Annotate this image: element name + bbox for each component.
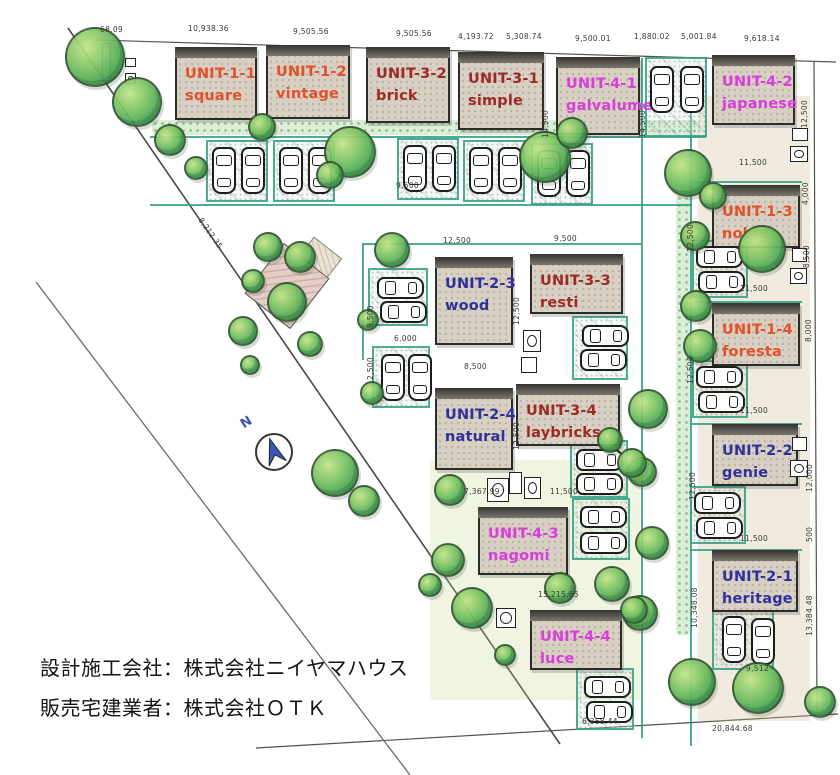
- unit-id: UNIT-2-2: [722, 441, 793, 463]
- car-icon: [212, 147, 236, 194]
- unit-roof-edge: [556, 57, 640, 68]
- unit-style-name: luce: [540, 649, 611, 671]
- dimension-label: 12,500: [686, 224, 695, 252]
- tree-icon: [297, 331, 323, 357]
- dimension-label: 13,384.48: [805, 595, 814, 636]
- tree-icon: [228, 316, 258, 346]
- tree-icon: [284, 241, 316, 273]
- unit-style-name: heritage: [722, 589, 793, 611]
- car-icon: [582, 325, 629, 347]
- unit-style-name: brick: [376, 86, 447, 108]
- dimension-label: 10,348.08: [690, 587, 699, 628]
- unit-roof-edge: [478, 507, 568, 518]
- unit-roof-edge: [530, 254, 623, 265]
- car-icon: [580, 506, 627, 528]
- dimension-label: 8,500: [366, 305, 375, 328]
- unit-roof-edge: [366, 47, 450, 58]
- unit-roof-edge: [712, 550, 798, 561]
- unit-square: UNIT-1-1square: [175, 47, 257, 120]
- dimension-label: 6,368.44: [582, 717, 618, 726]
- car-icon: [380, 301, 427, 323]
- dimension-label: 12,500: [800, 100, 809, 128]
- tree-icon: [738, 225, 786, 273]
- dimension-label: 12,000: [805, 464, 814, 492]
- tree-icon: [617, 448, 647, 478]
- unit-label: UNIT-4-4luce: [540, 627, 611, 671]
- dimension-label: 8,212.35: [197, 216, 225, 250]
- tree-icon: [594, 566, 630, 602]
- legend: 設計施工会社：株式会社ニイヤマハウス 販売宅建業者：株式会社ＯＴＫ: [40, 648, 408, 728]
- car-icon: [241, 147, 265, 194]
- car-icon: [696, 366, 743, 388]
- unit-natural: UNIT-2-4natural: [435, 388, 513, 470]
- tree-icon: [360, 381, 384, 405]
- dimension-label: 14,500: [541, 110, 550, 138]
- unit-id: UNIT-1-3: [722, 202, 793, 224]
- unit-id: UNIT-2-4: [445, 405, 516, 427]
- dimension-label: 20,844.68: [712, 724, 753, 733]
- unit-id: UNIT-4-1: [566, 74, 652, 96]
- unit-label: UNIT-1-1square: [185, 64, 256, 108]
- tree-icon: [680, 221, 710, 251]
- unit-foresta: UNIT-1-4foresta: [712, 303, 800, 366]
- unit-id: UNIT-4-3: [488, 524, 559, 546]
- dimension-label: 11,500: [739, 158, 767, 167]
- dimension-label: 11,500: [550, 487, 578, 496]
- north-arrow-icon: [258, 436, 290, 468]
- utility-box: [521, 357, 537, 373]
- tree-icon: [112, 77, 162, 127]
- unit-roof-edge: [516, 384, 620, 395]
- unit-label: UNIT-4-3nagomi: [488, 524, 559, 568]
- tree-icon: [267, 282, 307, 322]
- dimension-label: 12,500: [512, 422, 521, 450]
- road-edge-line: [362, 245, 364, 360]
- dimension-label: 11,500: [740, 284, 768, 293]
- dimension-label: 8,500: [464, 362, 487, 371]
- car-icon: [381, 354, 405, 401]
- unit-style-name: vintage: [276, 84, 347, 106]
- unit-id: UNIT-1-1: [185, 64, 256, 86]
- car-icon: [279, 147, 303, 194]
- dimension-label: 12,500: [512, 297, 521, 325]
- dimension-label: 5,001.84: [681, 32, 717, 41]
- north-label: N: [238, 413, 256, 432]
- unit-roof-edge: [458, 52, 544, 63]
- unit-style-name: natural: [445, 427, 516, 449]
- unit-roof-edge: [712, 303, 800, 314]
- unit-luce: UNIT-4-4luce: [530, 610, 622, 670]
- dimension-label: 8,500: [802, 245, 811, 268]
- dimension-label: 11,500: [740, 534, 768, 543]
- tree-icon: [241, 269, 265, 293]
- unit-roof-edge: [435, 388, 513, 399]
- dimension-label: 9,512: [746, 664, 769, 673]
- tree-icon: [680, 290, 712, 322]
- tree-icon: [248, 113, 276, 141]
- unit-id: UNIT-3-3: [540, 271, 611, 293]
- tree-icon: [154, 124, 186, 156]
- dimension-label: 4,000: [801, 182, 810, 205]
- tree-icon: [316, 161, 344, 189]
- unit-japanese: UNIT-4-2japanese: [712, 55, 795, 125]
- legend-seller-line: 販売宅建業者：株式会社ＯＴＫ: [40, 688, 408, 728]
- hedge-right-strip: [676, 195, 690, 635]
- unit-id: UNIT-4-2: [722, 72, 797, 94]
- unit-label: UNIT-1-2vintage: [276, 62, 347, 106]
- dimension-label: 11,500: [740, 406, 768, 415]
- unit-id: UNIT-3-4: [526, 401, 601, 423]
- unit-roof-edge: [175, 47, 257, 58]
- dimension-label: 68.09: [100, 25, 123, 34]
- dimension-label: 12,500: [443, 236, 471, 245]
- dimension-label: 1,880.02: [634, 32, 670, 41]
- unit-label: UNIT-2-1heritage: [722, 567, 793, 611]
- unit-id: UNIT-1-4: [722, 320, 793, 342]
- dimension-label: 9,618.14: [744, 34, 780, 43]
- unit-roof-edge: [435, 257, 513, 268]
- unit-roof-edge: [266, 45, 350, 56]
- car-icon: [698, 271, 745, 293]
- dimension-label: 5,308.74: [506, 32, 542, 41]
- utility-box: [509, 472, 522, 494]
- utility-box: [790, 268, 807, 284]
- car-icon: [576, 449, 623, 471]
- dimension-label: 9,500: [554, 234, 577, 243]
- dimension-label: 9,500.01: [575, 34, 611, 43]
- unit-simple: UNIT-3-1simple: [458, 52, 544, 130]
- tree-icon: [699, 182, 727, 210]
- dimension-label: 12,500: [686, 356, 695, 384]
- unit-label: UNIT-3-4laybricks: [526, 401, 601, 445]
- tree-icon: [556, 117, 588, 149]
- car-icon: [696, 246, 743, 268]
- tree-icon: [451, 587, 493, 629]
- car-icon: [696, 517, 743, 539]
- unit-style-name: resti: [540, 293, 611, 315]
- unit-resti: UNIT-3-3resti: [530, 254, 623, 314]
- dimension-label: 8,000: [804, 319, 813, 342]
- tree-icon: [431, 543, 465, 577]
- dimension-label: 4,193.72: [458, 32, 494, 41]
- dimension-label: 2,500: [366, 357, 375, 380]
- unit-label: UNIT-3-2brick: [376, 64, 447, 108]
- tree-icon: [253, 232, 283, 262]
- car-icon: [694, 492, 741, 514]
- unit-label: UNIT-3-1simple: [468, 69, 539, 113]
- unit-style-name: laybricks: [526, 423, 601, 445]
- tree-icon: [804, 686, 836, 718]
- dimension-label: 10,938.36: [188, 24, 229, 33]
- unit-style-name: nagomi: [488, 546, 559, 568]
- unit-label: UNIT-4-2japanese: [722, 72, 797, 116]
- unit-id: UNIT-1-2: [276, 62, 347, 84]
- dimension-label: 9,505.56: [293, 27, 329, 36]
- utility-box: [523, 330, 541, 352]
- unit-id: UNIT-3-2: [376, 64, 447, 86]
- utility-box: [125, 58, 136, 67]
- dimension-label: 7,367.99: [464, 487, 500, 496]
- unit-id: UNIT-3-1: [468, 69, 539, 91]
- utility-box: [792, 437, 807, 451]
- unit-brick: UNIT-3-2brick: [366, 47, 450, 123]
- tree-icon: [628, 389, 668, 429]
- unit-id: UNIT-2-3: [445, 274, 516, 296]
- unit-roof-edge: [712, 55, 795, 66]
- tree-icon: [374, 232, 410, 268]
- tree-icon: [65, 27, 125, 87]
- dimension-label: 9,505.56: [396, 29, 432, 38]
- unit-style-name: genie: [722, 463, 793, 485]
- unit-style-name: wood: [445, 296, 516, 318]
- car-icon: [650, 66, 674, 113]
- road-edge-line: [150, 204, 692, 206]
- unit-label: UNIT-1-4foresta: [722, 320, 793, 364]
- tree-icon: [635, 526, 669, 560]
- tree-icon: [348, 485, 380, 517]
- car-icon: [576, 473, 623, 495]
- unit-style-name: square: [185, 86, 256, 108]
- dimension-label: 14,500: [638, 110, 647, 138]
- car-icon: [680, 66, 704, 113]
- unit-style-name: foresta: [722, 342, 793, 364]
- unit-vintage: UNIT-1-2vintage: [266, 45, 350, 119]
- dimension-label: 12,500: [688, 472, 697, 500]
- unit-style-name: japanese: [722, 94, 797, 116]
- unit-label: UNIT-3-3resti: [540, 271, 611, 315]
- unit-genie: UNIT-2-2genie: [712, 424, 798, 486]
- tree-icon: [668, 658, 716, 706]
- unit-wood: UNIT-2-3wood: [435, 257, 513, 345]
- utility-box: [792, 128, 808, 141]
- legend-designer-line: 設計施工会社：株式会社ニイヤマハウス: [40, 648, 408, 688]
- unit-label: UNIT-2-4natural: [445, 405, 516, 449]
- unit-id: UNIT-4-4: [540, 627, 611, 649]
- unit-id: UNIT-2-1: [722, 567, 793, 589]
- dimension-label: 9,500: [396, 181, 419, 190]
- utility-box: [524, 477, 541, 499]
- utility-box: [790, 146, 808, 162]
- unit-label: UNIT-2-2genie: [722, 441, 793, 485]
- tree-icon: [597, 427, 623, 453]
- tree-icon: [240, 355, 260, 375]
- utility-box: [496, 608, 516, 628]
- unit-roof-edge: [712, 424, 798, 435]
- north-arrow: N: [255, 433, 293, 471]
- site-plan: UNIT-1-1squareUNIT-1-2vintageUNIT-3-2bri…: [0, 0, 840, 775]
- tree-icon: [494, 644, 516, 666]
- dimension-label: 15,215.65: [538, 590, 579, 599]
- car-icon: [580, 532, 627, 554]
- dimension-label: 6,000: [394, 334, 417, 343]
- car-icon: [377, 277, 424, 299]
- car-icon: [469, 147, 493, 194]
- tree-icon: [620, 596, 648, 624]
- car-icon: [580, 349, 627, 371]
- tree-icon: [418, 573, 442, 597]
- tree-icon: [544, 572, 576, 604]
- tree-icon: [434, 474, 466, 506]
- car-icon: [751, 618, 775, 665]
- tree-icon: [184, 156, 208, 180]
- car-icon: [432, 145, 456, 192]
- car-icon: [698, 391, 745, 413]
- unit-nagomi: UNIT-4-3nagomi: [478, 507, 568, 575]
- dimension-label: 500: [805, 527, 814, 542]
- unit-roof-edge: [530, 610, 622, 621]
- car-icon: [584, 676, 631, 698]
- car-icon: [722, 616, 746, 663]
- unit-label: UNIT-2-3wood: [445, 274, 516, 318]
- unit-style-name: simple: [468, 91, 539, 113]
- car-icon: [408, 354, 432, 401]
- unit-heritage: UNIT-2-1heritage: [712, 550, 798, 612]
